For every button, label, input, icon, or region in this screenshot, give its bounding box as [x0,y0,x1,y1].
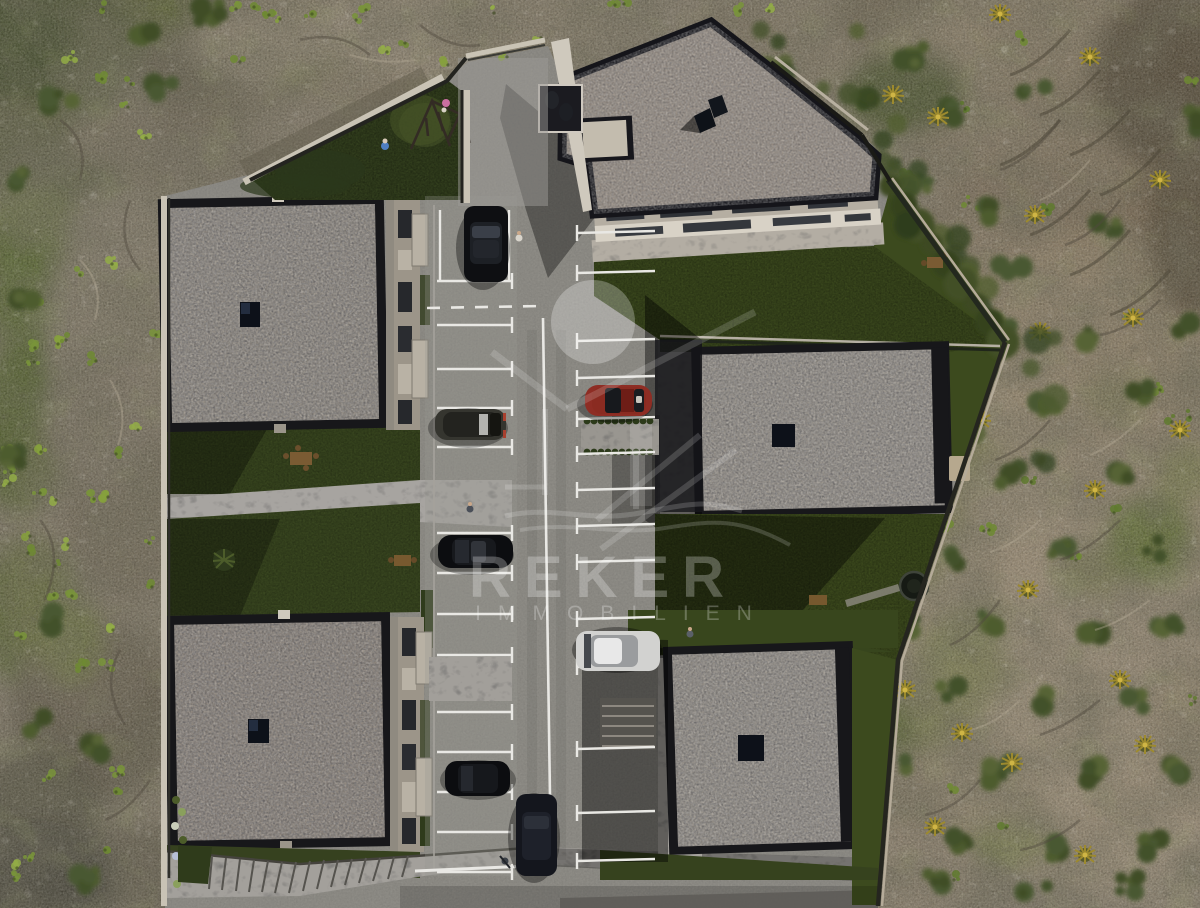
svg-text:REKER: REKER [469,545,737,610]
svg-text:IMMOBILIEN: IMMOBILIEN [475,602,769,625]
